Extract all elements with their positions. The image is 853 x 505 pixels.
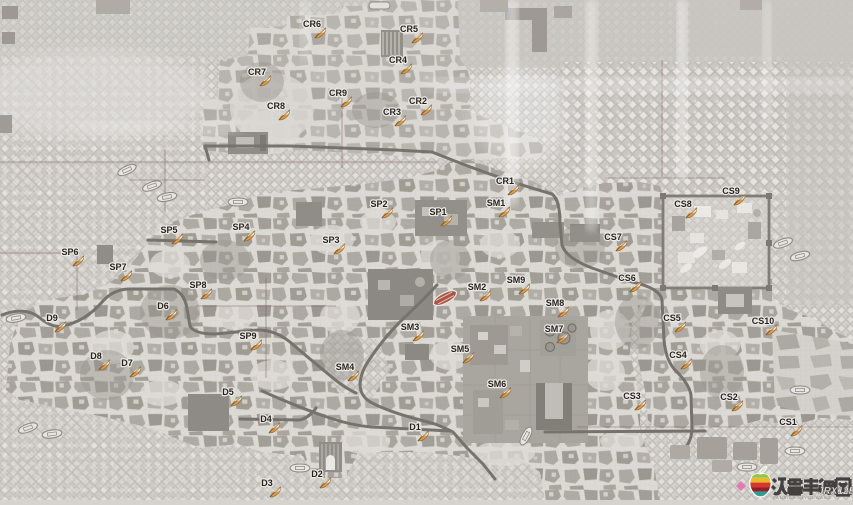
svg-text:JRX12B: JRX12B bbox=[818, 486, 853, 497]
